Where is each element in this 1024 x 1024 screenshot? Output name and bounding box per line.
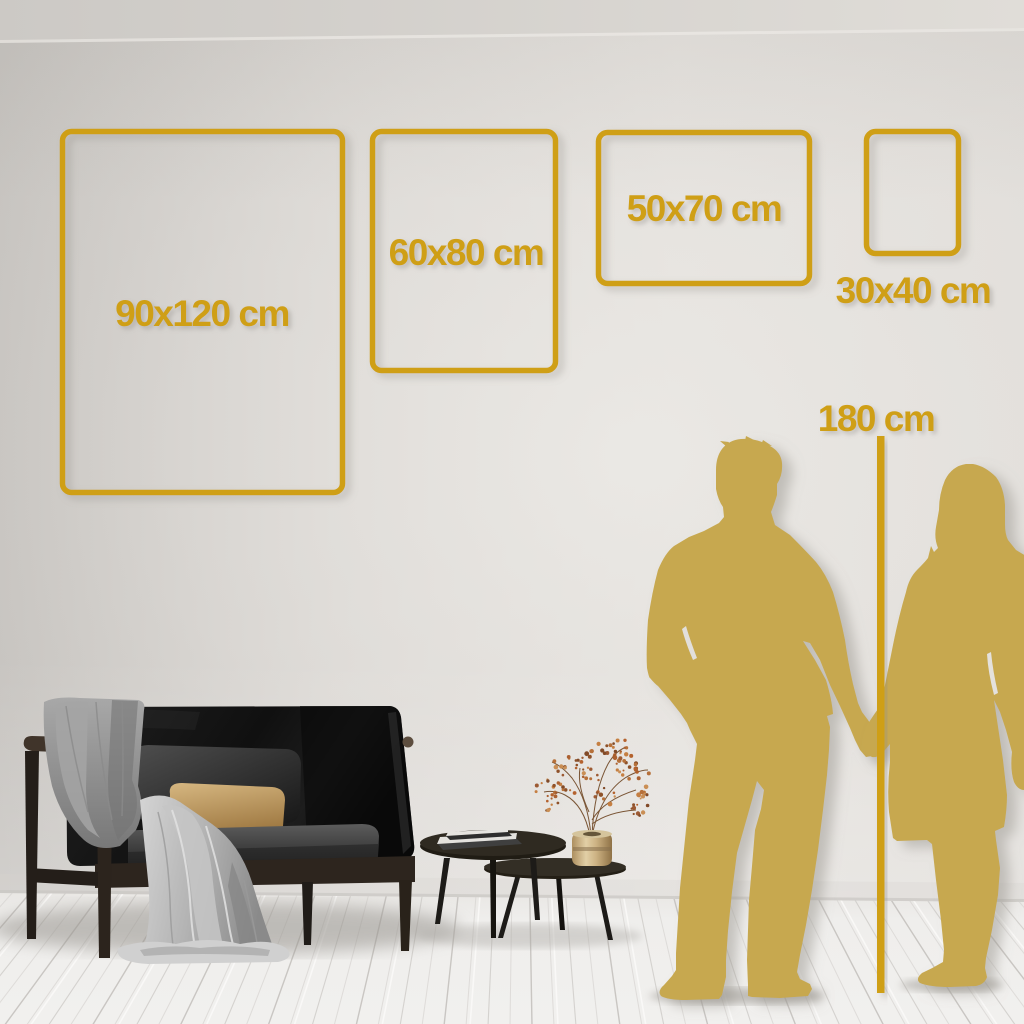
svg-text:90x120 cm: 90x120 cm: [115, 293, 289, 334]
svg-text:50x70 cm: 50x70 cm: [627, 188, 782, 229]
svg-text:30x40 cm: 30x40 cm: [836, 270, 991, 311]
svg-text:60x80 cm: 60x80 cm: [389, 232, 544, 273]
svg-text:180 cm: 180 cm: [818, 398, 935, 439]
